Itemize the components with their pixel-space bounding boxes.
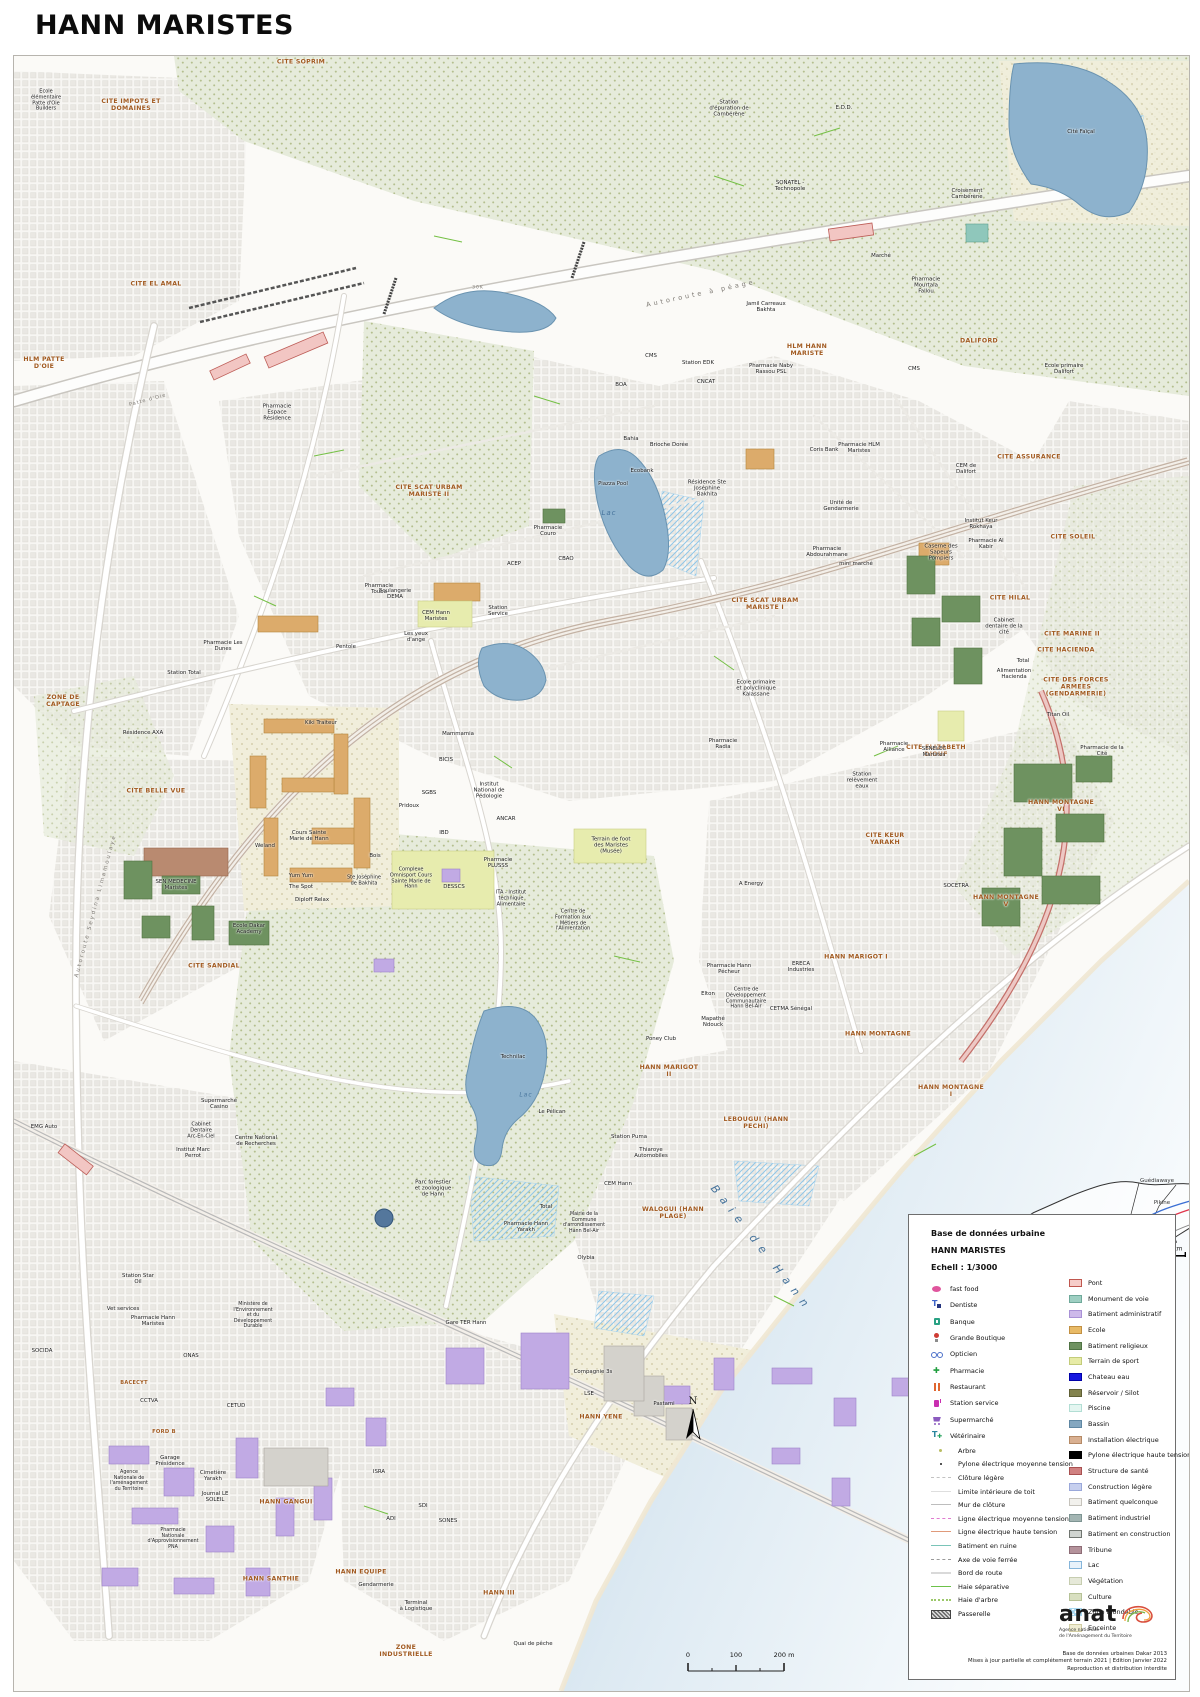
legend-subtitle: HANN MARISTES — [931, 1246, 1006, 1255]
legend-area-item: Batiment religieux — [1069, 1338, 1173, 1354]
area-swatch — [1069, 1593, 1082, 1601]
poi-icon — [931, 1415, 943, 1425]
line-swatch — [931, 1487, 951, 1497]
legend-area-item: Tribune — [1069, 1542, 1173, 1558]
area-swatch — [1069, 1577, 1082, 1585]
legend-line-label: Axe de voie ferrée — [958, 1556, 1017, 1564]
legend-line-item: Batiment en ruine — [931, 1539, 1067, 1553]
line-swatch — [931, 1500, 951, 1510]
legend-line-label: Ligne électrique moyenne tension — [958, 1515, 1069, 1523]
legend-poi-item: Pharmacie — [931, 1362, 1067, 1378]
legend-poi-item: Station service — [931, 1395, 1067, 1411]
legend-area-label: Pylone électrique haute tension — [1088, 1451, 1190, 1459]
legend-poi-label: Restaurant — [950, 1383, 986, 1391]
map-canvas[interactable]: CITE SOPRIMCITE IMPOTS ET DOMAINESCITE E… — [13, 55, 1190, 1692]
legend-area-item: Végétation — [1069, 1573, 1173, 1589]
legend-line-label: Batiment en ruine — [958, 1542, 1017, 1550]
legend-line-label: Arbre — [958, 1447, 976, 1455]
legend-line-item: Clôture légère — [931, 1471, 1067, 1485]
legend-area-item: Pont — [1069, 1275, 1173, 1291]
legend-line-item: Mur de clôture — [931, 1498, 1067, 1512]
legend-area-item: Construction légère — [1069, 1479, 1173, 1495]
legend-line-item: Axe de voie ferrée — [931, 1553, 1067, 1567]
credit-line: Mises à jour partielle et complétement t… — [968, 1658, 1167, 1665]
legend-poi-label: Grande Boutique — [950, 1334, 1005, 1342]
legend-line-label: Haie séparative — [958, 1583, 1009, 1591]
area-swatch — [1069, 1498, 1082, 1506]
legend-poi-item: Supermarché — [931, 1411, 1067, 1427]
anat-logo-text: anat — [1059, 1602, 1117, 1627]
legend-area-item: Batiment quelconque — [1069, 1495, 1173, 1511]
legend-poi-item: Opticien — [931, 1346, 1067, 1362]
page-title: HANN MARISTES — [35, 10, 294, 41]
area-swatch — [1069, 1420, 1082, 1428]
poi-icon — [931, 1398, 943, 1408]
poi-icon — [931, 1317, 943, 1327]
scale-bar: 0 100 200 m — [686, 1651, 806, 1677]
legend-area-label: Piscine — [1088, 1404, 1110, 1412]
credits: Base de données urbaines Dakar 2013Mises… — [968, 1651, 1167, 1673]
legend-area-item: Ecole — [1069, 1322, 1173, 1338]
area-swatch — [1069, 1467, 1082, 1475]
line-swatch — [931, 1582, 951, 1592]
anat-logo: anat Agence nationale de l'Aménagement d… — [1059, 1601, 1157, 1639]
legend-line-label: Bord de route — [958, 1569, 1003, 1577]
legend-poi-item: Banque — [931, 1314, 1067, 1330]
legend-area-list: Pont Monument de voie Batiment administr… — [1069, 1275, 1173, 1636]
area-swatch — [1069, 1326, 1082, 1334]
legend-area-item: Réservoir / Silot — [1069, 1385, 1173, 1401]
legend-line-label: Clôture légère — [958, 1474, 1004, 1482]
legend-poi-label: fast food — [950, 1285, 979, 1293]
scale-100: 100 — [730, 1651, 742, 1659]
area-swatch — [1069, 1530, 1082, 1538]
legend-poi-label: Banque — [950, 1318, 975, 1326]
legend-area-item: Pylone électrique haute tension — [1069, 1448, 1173, 1464]
area-swatch — [1069, 1436, 1082, 1444]
scale-200: 200 m — [774, 1651, 795, 1659]
line-swatch — [931, 1514, 951, 1524]
north-label: N — [678, 1396, 708, 1407]
legend-poi-list: fast food Dentiste Banque Grande Boutiqu… — [931, 1281, 1067, 1444]
poi-icon — [931, 1300, 943, 1310]
area-swatch — [1069, 1295, 1082, 1303]
legend-line-list: Arbre Pylone électrique moyenne tension … — [931, 1444, 1067, 1621]
page: HANN MARISTES — [0, 0, 1200, 1697]
north-arrow-icon — [682, 1407, 704, 1443]
area-swatch — [1069, 1404, 1082, 1412]
legend-line-item: Bord de route — [931, 1566, 1067, 1580]
poi-icon — [931, 1431, 943, 1441]
legend-area-item: Lac — [1069, 1557, 1173, 1573]
legend-area-item: Batiment industriel — [1069, 1510, 1173, 1526]
legend-line-item: Ligne électrique haute tension — [931, 1526, 1067, 1540]
legend-area-label: Ecole — [1088, 1326, 1105, 1334]
poi-icon — [931, 1284, 943, 1294]
legend-area-label: Végétation — [1088, 1577, 1123, 1585]
legend-area-label: Tribune — [1088, 1546, 1112, 1554]
line-swatch — [931, 1473, 951, 1483]
poi-icon — [931, 1382, 943, 1392]
legend-line-item: Pylone électrique moyenne tension — [931, 1458, 1067, 1472]
legend-area-label: Lac — [1088, 1561, 1099, 1569]
line-swatch — [931, 1568, 951, 1578]
poi-icon — [931, 1349, 943, 1359]
line-swatch — [931, 1446, 951, 1456]
line-swatch — [931, 1595, 951, 1605]
legend-area-label: Culture — [1088, 1593, 1112, 1601]
legend-area-item: Chateau eau — [1069, 1369, 1173, 1385]
legend-line-label: Limite intérieure de toit — [958, 1488, 1035, 1496]
area-swatch — [1069, 1483, 1082, 1491]
legend-area-label: Batiment industriel — [1088, 1514, 1150, 1522]
legend-area-label: Monument de voie — [1088, 1295, 1149, 1303]
legend-line-label: Mur de clôture — [958, 1501, 1005, 1509]
area-swatch — [1069, 1514, 1082, 1522]
legend-area-label: Batiment administratif — [1088, 1310, 1161, 1318]
legend-poi-item: Vétérinaire — [931, 1428, 1067, 1444]
legend-poi-label: Vétérinaire — [950, 1432, 985, 1440]
line-swatch — [931, 1555, 951, 1565]
north-arrow: N — [678, 1396, 708, 1447]
legend-scale: Echell : 1/3000 — [931, 1263, 997, 1272]
legend-line-item: Haie séparative — [931, 1580, 1067, 1594]
line-swatch — [931, 1459, 951, 1469]
legend-poi-item: Restaurant — [931, 1379, 1067, 1395]
legend-area-item: Monument de voie — [1069, 1291, 1173, 1307]
legend-line-item: Haie d'arbre — [931, 1594, 1067, 1608]
line-swatch — [931, 1609, 951, 1619]
legend-area-label: Pont — [1088, 1279, 1102, 1287]
legend-area-label: Réservoir / Silot — [1088, 1389, 1139, 1397]
legend-area-item: Batiment administratif — [1069, 1306, 1173, 1322]
legend-line-label: Haie d'arbre — [958, 1596, 998, 1604]
legend-poi-item: Dentiste — [931, 1297, 1067, 1313]
area-swatch — [1069, 1389, 1082, 1397]
area-swatch — [1069, 1357, 1082, 1365]
scale-bar-graphic — [686, 1661, 796, 1673]
legend-line-item: Arbre — [931, 1444, 1067, 1458]
legend-line-item: Limite intérieure de toit — [931, 1485, 1067, 1499]
area-swatch — [1069, 1342, 1082, 1350]
legend-area-item: Bassin — [1069, 1416, 1173, 1432]
legend-area-label: Installation électrique — [1088, 1436, 1159, 1444]
area-swatch — [1069, 1561, 1082, 1569]
line-swatch — [931, 1541, 951, 1551]
legend-area-label: Batiment en construction — [1088, 1530, 1170, 1538]
anat-logo-swoosh-icon — [1119, 1601, 1157, 1627]
line-swatch — [931, 1527, 951, 1537]
legend-area-label: Batiment quelconque — [1088, 1498, 1158, 1506]
legend-area-item: Structure de santé — [1069, 1463, 1173, 1479]
legend-poi-label: Pharmacie — [950, 1367, 984, 1375]
legend-poi-label: Supermarché — [950, 1416, 993, 1424]
legend-area-item: Piscine — [1069, 1401, 1173, 1417]
legend-area-item: Terrain de sport — [1069, 1353, 1173, 1369]
legend-area-item: Batiment en construction — [1069, 1526, 1173, 1542]
legend-area-label: Bassin — [1088, 1420, 1109, 1428]
poi-icon — [931, 1333, 943, 1343]
legend-area-item: Installation électrique — [1069, 1432, 1173, 1448]
area-swatch — [1069, 1310, 1082, 1318]
area-swatch — [1069, 1279, 1082, 1287]
legend-area-label: Batiment religieux — [1088, 1342, 1148, 1350]
legend-line-label: Pylone électrique moyenne tension — [958, 1460, 1073, 1468]
legend-line-item: Ligne électrique moyenne tension — [931, 1512, 1067, 1526]
legend-area-label: Terrain de sport — [1088, 1357, 1139, 1365]
legend-area-label: Chateau eau — [1088, 1373, 1129, 1381]
legend-poi-item: fast food — [931, 1281, 1067, 1297]
legend-poi-item: Grande Boutique — [931, 1330, 1067, 1346]
legend-panel: Base de données urbaine HANN MARISTES Ec… — [908, 1214, 1176, 1680]
anat-logo-subtext: Agence nationale de l'Aménagement du Ter… — [1059, 1628, 1157, 1639]
area-swatch — [1069, 1373, 1082, 1381]
legend-title: Base de données urbaine — [931, 1229, 1045, 1238]
legend-poi-label: Station service — [950, 1399, 998, 1407]
legend-line-label: Ligne électrique haute tension — [958, 1528, 1057, 1536]
legend-area-label: Construction légère — [1088, 1483, 1152, 1491]
legend-line-label: Passerelle — [958, 1610, 991, 1618]
area-swatch — [1069, 1546, 1082, 1554]
credit-line: Reproduction et distribution interdite — [968, 1666, 1167, 1673]
poi-icon — [931, 1366, 943, 1376]
legend-poi-label: Dentiste — [950, 1301, 977, 1309]
legend-poi-label: Opticien — [950, 1350, 977, 1358]
scale-0: 0 — [686, 1651, 690, 1659]
legend-area-label: Structure de santé — [1088, 1467, 1149, 1475]
legend-line-item: Passerelle — [931, 1607, 1067, 1621]
area-swatch — [1069, 1451, 1082, 1459]
